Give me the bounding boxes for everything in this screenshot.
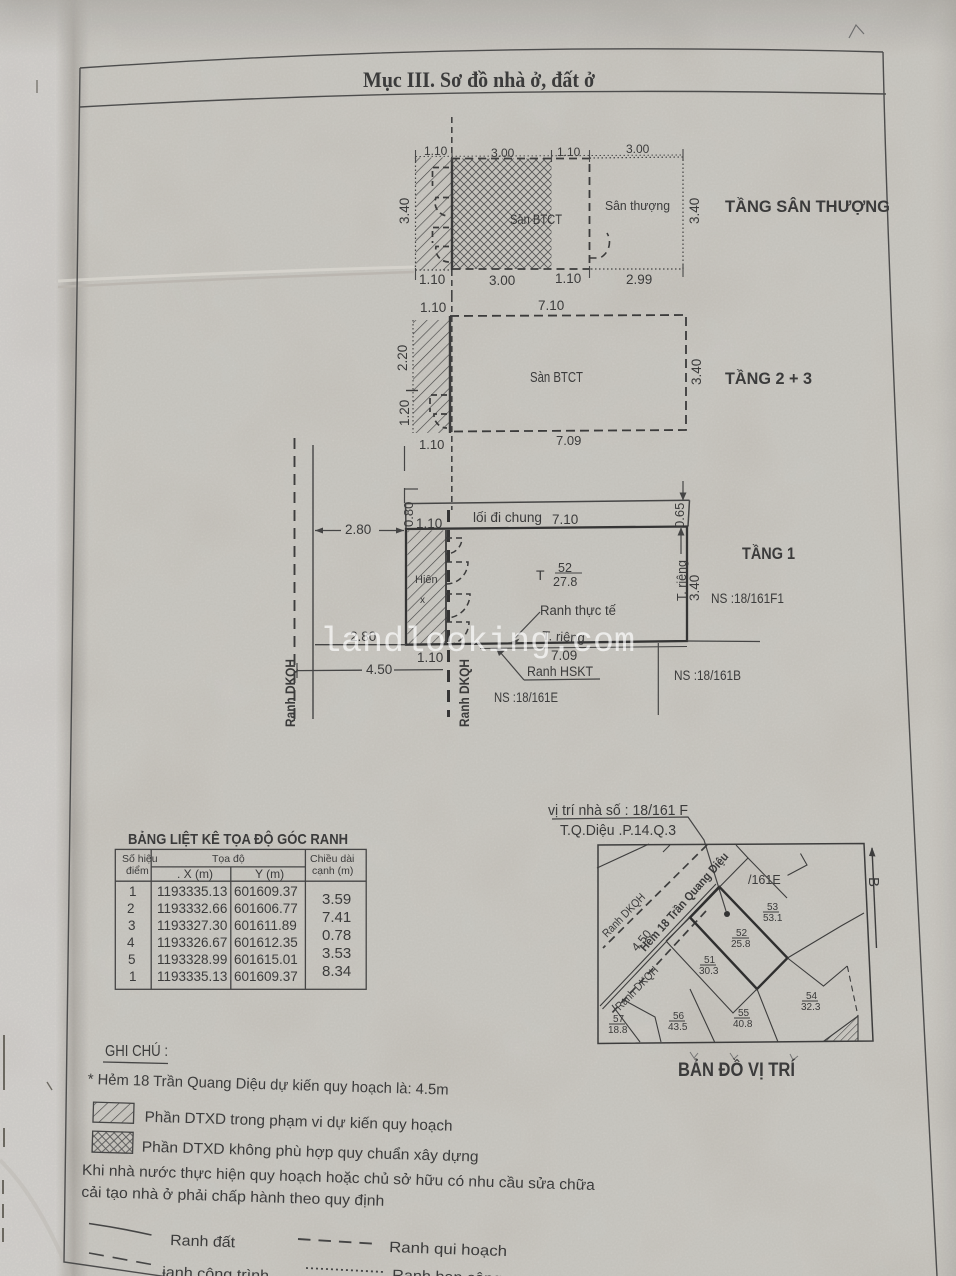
- svg-text:57: 57: [613, 1014, 625, 1025]
- svg-text:lối đi chung: lối đi chung: [473, 510, 542, 525]
- svg-text:8.34: 8.34: [322, 963, 351, 980]
- svg-text:1: 1: [129, 884, 137, 899]
- svg-text:1: 1: [129, 969, 137, 984]
- svg-text:18.8: 18.8: [608, 1025, 628, 1036]
- svg-text:4.50: 4.50: [366, 662, 392, 677]
- svg-text:BẢN ĐỒ VỊ TRÍ: BẢN ĐỒ VỊ TRÍ: [678, 1059, 796, 1081]
- svg-text:Ranh DKQH: Ranh DKQH: [456, 659, 472, 727]
- svg-text:1193327.30: 1193327.30: [157, 918, 227, 933]
- svg-text:54: 54: [806, 991, 818, 1002]
- svg-text:vị trí nhà số : 18/161 F: vị trí nhà số : 18/161 F: [548, 803, 688, 819]
- svg-text:2.20: 2.20: [395, 345, 410, 371]
- svg-text:601611.89: 601611.89: [234, 918, 297, 933]
- svg-text:3.00: 3.00: [489, 273, 515, 288]
- svg-text:TẦNG 1: TẦNG 1: [742, 544, 795, 563]
- svg-text:Ranh đất: Ranh đất: [170, 1232, 236, 1251]
- svg-text:52: 52: [736, 928, 748, 939]
- svg-text:0.65: 0.65: [672, 503, 687, 528]
- svg-text:Chiều dài: Chiều dài: [310, 853, 354, 865]
- svg-text:NS :18/161B: NS :18/161B: [674, 668, 741, 683]
- svg-text:51: 51: [704, 955, 716, 966]
- svg-text:0.78: 0.78: [322, 927, 351, 944]
- svg-text:cạnh (m): cạnh (m): [312, 865, 353, 877]
- svg-text:3: 3: [128, 918, 136, 933]
- svg-text:TẦNG 2 + 3: TẦNG 2 + 3: [725, 369, 812, 388]
- svg-text:2.99: 2.99: [626, 272, 652, 287]
- svg-text:3.00: 3.00: [626, 142, 650, 156]
- svg-text:1.10: 1.10: [419, 437, 444, 452]
- svg-text:1.10: 1.10: [416, 516, 442, 531]
- svg-text:x: x: [420, 595, 425, 606]
- svg-text:1193326.67: 1193326.67: [157, 935, 227, 950]
- svg-text:0.80: 0.80: [401, 502, 416, 527]
- svg-text:55: 55: [738, 1008, 750, 1019]
- svg-text:3.40: 3.40: [689, 359, 704, 385]
- svg-text:điểm: điểm: [126, 865, 149, 877]
- svg-text:32.3: 32.3: [801, 1002, 821, 1013]
- svg-text:Tọa độ: Tọa độ: [212, 853, 245, 865]
- svg-text:1.20: 1.20: [397, 400, 412, 426]
- svg-text:T.Q.Diệu .P.14.Q.3: T.Q.Diệu .P.14.Q.3: [560, 823, 676, 839]
- svg-text:Mục III. Sơ đồ nhà ở, đất ở: Mục III. Sơ đồ nhà ở, đất ở: [363, 67, 596, 92]
- svg-text:43.5: 43.5: [668, 1022, 688, 1033]
- svg-text:3.40: 3.40: [687, 198, 702, 224]
- svg-text:7.10: 7.10: [552, 512, 578, 527]
- svg-text:Sân thượng: Sân thượng: [605, 198, 670, 213]
- svg-text:1193328.99: 1193328.99: [157, 952, 227, 967]
- svg-text:1.10: 1.10: [424, 144, 448, 158]
- svg-text:2: 2: [127, 901, 135, 916]
- svg-text:TẦNG SÂN THƯỢNG: TẦNG SÂN THƯỢNG: [725, 197, 890, 216]
- svg-text:NS :18/161E: NS :18/161E: [494, 690, 558, 705]
- svg-text:601606.77: 601606.77: [234, 901, 298, 916]
- svg-text:25.8: 25.8: [731, 939, 751, 950]
- svg-text:2.80: 2.80: [345, 522, 371, 537]
- svg-text:1193335.13: 1193335.13: [157, 969, 227, 984]
- svg-text:landlooking.com: landlooking.com: [320, 622, 635, 662]
- svg-text:7.09: 7.09: [556, 433, 581, 448]
- svg-text:Sàn BTCT: Sàn BTCT: [530, 369, 583, 386]
- svg-text:601609.37: 601609.37: [234, 884, 298, 899]
- svg-text:7.41: 7.41: [322, 909, 351, 926]
- svg-text:Sàn BTCT: Sàn BTCT: [510, 211, 562, 227]
- svg-text:40.8: 40.8: [733, 1019, 753, 1030]
- svg-text:1193332.66: 1193332.66: [157, 901, 227, 916]
- svg-text:27.8: 27.8: [553, 575, 577, 589]
- svg-text:GHI CHÚ :: GHI CHÚ :: [105, 1043, 168, 1060]
- svg-text:Ranh DKQH: Ranh DKQH: [282, 659, 298, 727]
- svg-text:Ranh thực tế: Ranh thực tế: [540, 603, 616, 618]
- svg-text:30.3: 30.3: [699, 966, 719, 977]
- svg-text:601615.01: 601615.01: [234, 952, 298, 967]
- svg-text:Hiên: Hiên: [415, 574, 438, 586]
- svg-text:1.10: 1.10: [420, 300, 446, 315]
- svg-text:3.40: 3.40: [397, 198, 412, 224]
- svg-text:Ranh HSKT: Ranh HSKT: [527, 664, 593, 679]
- svg-text:Số hiệu: Số hiệu: [122, 853, 158, 865]
- svg-text:B: B: [865, 877, 882, 887]
- svg-text:3.00: 3.00: [491, 146, 515, 160]
- svg-text:3.40: 3.40: [687, 575, 702, 601]
- svg-text:601609.37: 601609.37: [234, 969, 298, 984]
- svg-text:T, riêng: T, riêng: [675, 560, 689, 601]
- svg-text:Y (m): Y (m): [255, 867, 284, 881]
- svg-text:4: 4: [127, 935, 135, 950]
- svg-text:. X (m): . X (m): [177, 867, 213, 881]
- svg-text:7.10: 7.10: [538, 298, 564, 313]
- svg-text:3.53: 3.53: [322, 945, 351, 962]
- svg-text:53: 53: [767, 902, 779, 913]
- svg-text:1.10: 1.10: [419, 272, 445, 287]
- svg-text:BẢNG LIỆT KÊ TỌA ĐỘ GÓC RANH: BẢNG LIỆT KÊ TỌA ĐỘ GÓC RANH: [128, 830, 348, 848]
- svg-text:601612.35: 601612.35: [234, 935, 298, 950]
- svg-text:1.10: 1.10: [557, 145, 581, 159]
- svg-text:1.10: 1.10: [555, 271, 581, 286]
- svg-text:NS :18/161F1: NS :18/161F1: [711, 591, 784, 606]
- svg-text:1193335.13: 1193335.13: [157, 884, 227, 899]
- svg-text:56: 56: [673, 1011, 685, 1022]
- svg-text:/161E: /161E: [748, 873, 781, 887]
- svg-text:5: 5: [128, 952, 136, 967]
- svg-text:53.1: 53.1: [763, 913, 783, 924]
- svg-text:T: T: [536, 567, 545, 583]
- svg-text:3.59: 3.59: [322, 891, 351, 908]
